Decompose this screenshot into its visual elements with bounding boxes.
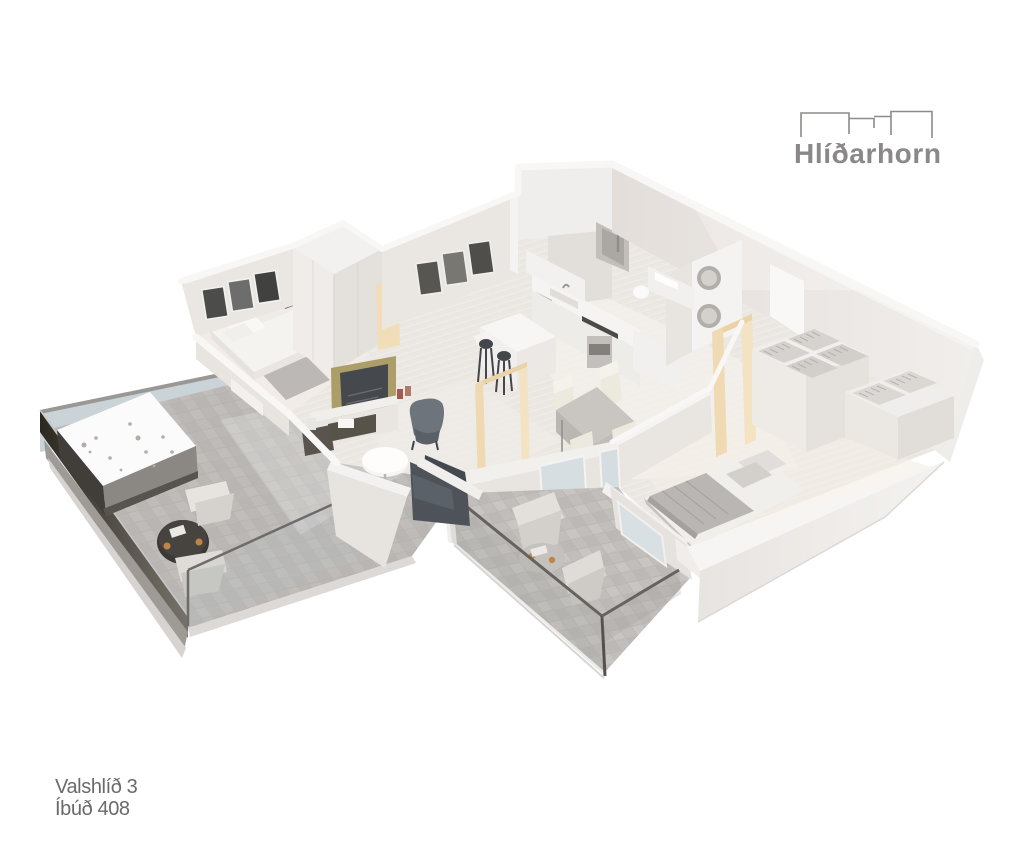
svg-text:Hlíðarhorn: Hlíðarhorn [794, 138, 942, 169]
svg-text:Valshlíð 3: Valshlíð 3 [55, 776, 138, 798]
svg-text:Íbúð 408: Íbúð 408 [55, 797, 130, 820]
